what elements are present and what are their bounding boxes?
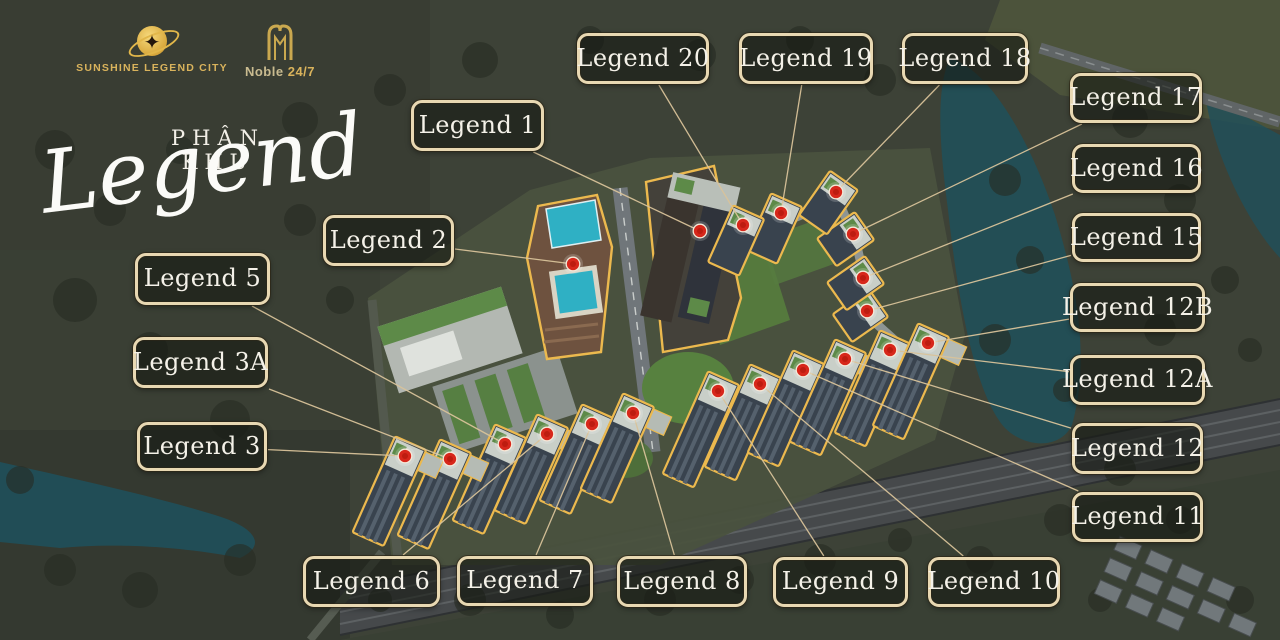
label-text: Legend 7 — [466, 566, 583, 594]
label-text: Legend 16 — [1070, 154, 1203, 182]
label-legend-5[interactable]: Legend 5 — [135, 253, 270, 305]
label-text: Legend 19 — [739, 44, 872, 72]
label-legend-11[interactable]: Legend 11 — [1072, 492, 1203, 542]
noble-suffix: 24/7 — [288, 64, 315, 79]
label-legend-9[interactable]: Legend 9 — [773, 557, 908, 607]
label-text: Legend 5 — [144, 264, 261, 292]
zone-script-title: Legend — [36, 107, 324, 226]
label-text: Legend 20 — [576, 44, 709, 72]
noble-word: Noble — [245, 64, 284, 79]
label-text: Legend 1 — [419, 111, 536, 139]
sunshine-star-logo-icon: ✦ — [130, 24, 174, 60]
label-legend-19[interactable]: Legend 19 — [739, 33, 873, 84]
label-text: Legend 17 — [1069, 83, 1202, 111]
label-text: Legend 15 — [1070, 223, 1203, 251]
label-legend-1[interactable]: Legend 1 — [411, 100, 544, 151]
label-legend-12a[interactable]: Legend 12A — [1070, 355, 1205, 405]
label-legend-7[interactable]: Legend 7 — [457, 556, 593, 606]
label-legend-3[interactable]: Legend 3 — [137, 422, 267, 471]
label-text: Legend 2 — [330, 226, 447, 254]
label-text: Legend 12A — [1062, 365, 1213, 393]
label-text: Legend 8 — [623, 567, 740, 595]
noble-brand: Noble 24/7 — [225, 22, 335, 79]
label-text: Legend 3A — [133, 348, 268, 376]
label-legend-18[interactable]: Legend 18 — [902, 33, 1028, 84]
label-legend-20[interactable]: Legend 20 — [577, 33, 709, 84]
noble-brand-name: Noble 24/7 — [225, 64, 335, 79]
label-legend-12[interactable]: Legend 12 — [1072, 423, 1203, 474]
label-text: Legend 10 — [927, 567, 1060, 595]
star-glyph: ✦ — [130, 24, 174, 60]
noble-monogram-icon — [263, 22, 297, 62]
label-legend-12b[interactable]: Legend 12B — [1070, 283, 1205, 332]
label-legend-6[interactable]: Legend 6 — [303, 556, 440, 607]
title-block: ✦ SUNSHINE LEGEND CITY Noble 24/7 PHÂN K… — [0, 0, 340, 260]
label-legend-10[interactable]: Legend 10 — [928, 557, 1060, 607]
label-text: Legend 3 — [143, 432, 260, 460]
label-text: Legend 6 — [313, 567, 430, 595]
label-legend-16[interactable]: Legend 16 — [1072, 144, 1201, 193]
label-legend-2[interactable]: Legend 2 — [323, 215, 454, 266]
label-text: Legend 9 — [782, 567, 899, 595]
aerial-masterplan-screenshot: Legend 1Legend 2Legend 5Legend 3ALegend … — [0, 0, 1280, 640]
label-legend-15[interactable]: Legend 15 — [1072, 213, 1201, 262]
label-text: Legend 11 — [1071, 502, 1204, 530]
label-legend-3a[interactable]: Legend 3A — [133, 337, 268, 388]
label-text: Legend 18 — [898, 44, 1031, 72]
label-legend-17[interactable]: Legend 17 — [1070, 73, 1202, 123]
brand-row: ✦ SUNSHINE LEGEND CITY Noble 24/7 — [90, 22, 340, 82]
label-legend-8[interactable]: Legend 8 — [617, 556, 747, 607]
label-text: Legend 12B — [1062, 293, 1213, 321]
label-text: Legend 12 — [1071, 434, 1204, 462]
